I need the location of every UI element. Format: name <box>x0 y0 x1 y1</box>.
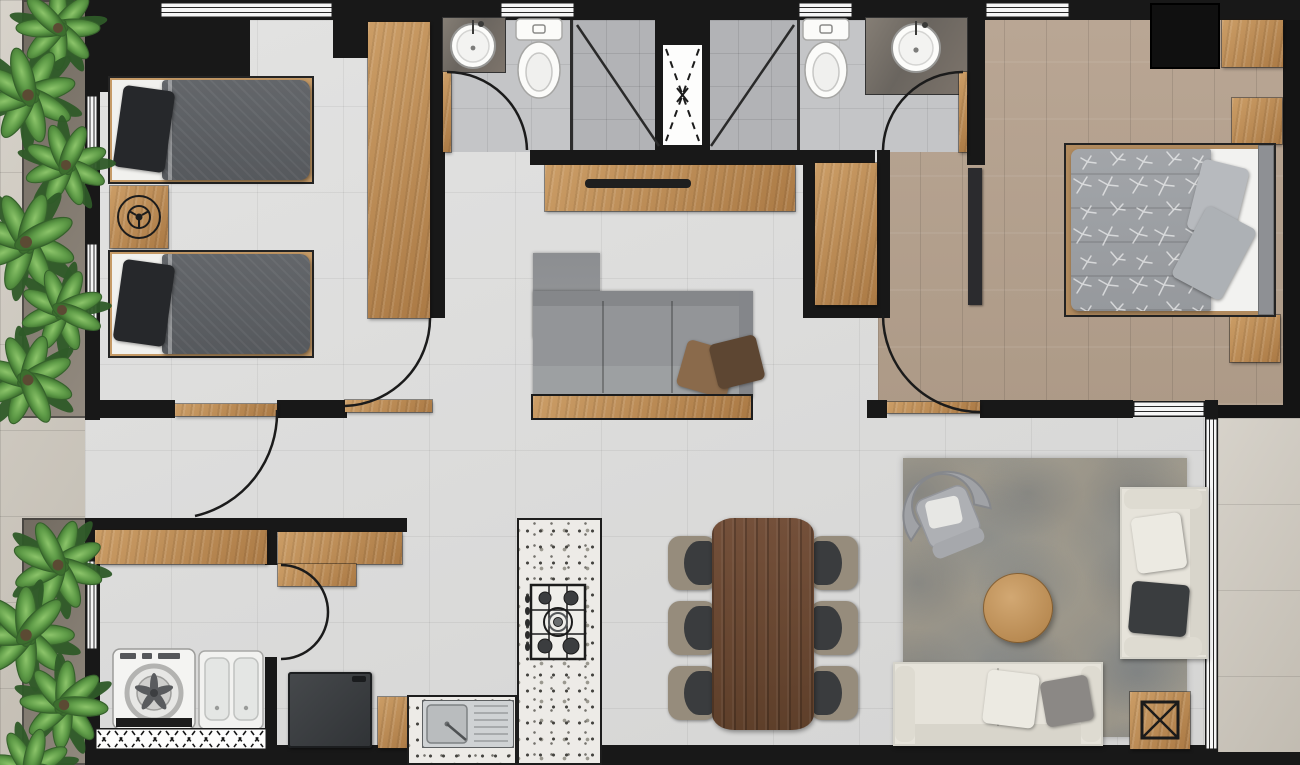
bath-left-door-arc <box>447 72 527 150</box>
bath-right-door-arc <box>883 72 963 150</box>
door-swing-arcs <box>0 0 1300 765</box>
entry-door-arc <box>195 410 277 516</box>
bedroom-door-arc <box>345 318 430 406</box>
garden-plants <box>0 0 160 765</box>
floor-plan <box>0 0 1300 765</box>
laundry-double-door-arc <box>281 565 328 659</box>
master-door-arc <box>883 315 980 412</box>
